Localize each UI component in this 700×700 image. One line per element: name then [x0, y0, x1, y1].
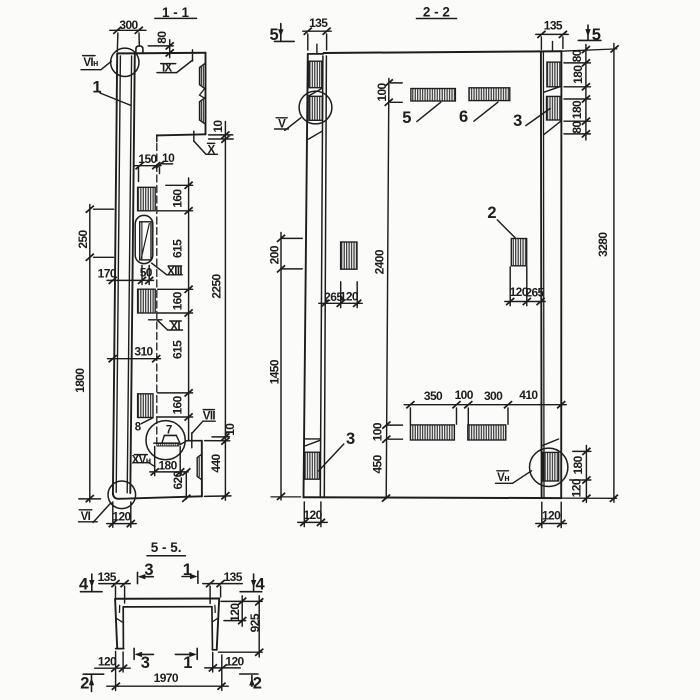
svg-text:120: 120 — [303, 508, 322, 522]
svg-text:6: 6 — [459, 108, 468, 126]
svg-text:Vн: Vн — [497, 472, 509, 484]
svg-text:5: 5 — [270, 26, 279, 44]
svg-text:1: 1 — [183, 654, 192, 672]
svg-text:1970: 1970 — [154, 671, 179, 685]
svg-text:350: 350 — [424, 389, 443, 403]
svg-text:925: 925 — [248, 613, 262, 632]
svg-text:V: V — [278, 119, 286, 131]
svg-text:10: 10 — [223, 423, 237, 436]
svg-text:410: 410 — [519, 388, 538, 402]
svg-text:160: 160 — [171, 395, 185, 414]
svg-text:7: 7 — [166, 424, 172, 436]
svg-text:XI: XI — [170, 321, 180, 333]
svg-text:160: 160 — [171, 189, 185, 208]
svg-text:5: 5 — [592, 26, 601, 44]
svg-text:VI: VI — [81, 511, 91, 523]
svg-text:3: 3 — [513, 112, 522, 130]
svg-text:135: 135 — [98, 570, 117, 584]
svg-text:1: 1 — [183, 561, 192, 579]
svg-text:5: 5 — [402, 109, 411, 127]
svg-text:2: 2 — [487, 204, 496, 222]
svg-text:1: 1 — [92, 79, 101, 97]
svg-text:615: 615 — [171, 239, 185, 258]
svg-text:300: 300 — [484, 389, 503, 403]
svg-text:265: 265 — [525, 286, 544, 300]
svg-text:440: 440 — [209, 453, 223, 472]
svg-text:2400: 2400 — [372, 249, 386, 274]
svg-text:120: 120 — [112, 510, 131, 524]
svg-text:200: 200 — [268, 245, 282, 264]
svg-text:120: 120 — [569, 478, 583, 497]
svg-text:3: 3 — [141, 654, 150, 672]
svg-text:3: 3 — [144, 561, 153, 579]
svg-text:VII: VII — [203, 410, 216, 422]
svg-text:300: 300 — [119, 18, 138, 32]
svg-text:3: 3 — [346, 430, 355, 448]
svg-text:10: 10 — [211, 120, 225, 133]
svg-text:120: 120 — [340, 289, 359, 303]
svg-text:X: X — [208, 145, 216, 157]
svg-text:80: 80 — [570, 121, 584, 134]
svg-text:10: 10 — [162, 151, 175, 165]
svg-text:120: 120 — [228, 603, 242, 622]
svg-text:450: 450 — [371, 454, 385, 473]
svg-text:100: 100 — [455, 388, 474, 402]
svg-text:170: 170 — [98, 267, 117, 281]
svg-text:2250: 2250 — [209, 273, 223, 298]
svg-text:2 - 2: 2 - 2 — [423, 5, 450, 20]
svg-text:100: 100 — [375, 82, 389, 101]
svg-text:100: 100 — [371, 422, 385, 441]
svg-text:250: 250 — [76, 229, 90, 248]
svg-text:IX: IX — [162, 63, 173, 75]
svg-text:180: 180 — [570, 100, 584, 119]
svg-text:2: 2 — [253, 675, 262, 693]
svg-text:1450: 1450 — [268, 359, 282, 384]
svg-text:135: 135 — [309, 16, 328, 30]
svg-text:150: 150 — [138, 152, 157, 166]
svg-text:80: 80 — [570, 49, 584, 62]
svg-text:180: 180 — [571, 455, 585, 474]
svg-text:180: 180 — [158, 458, 177, 472]
svg-text:XIII: XIII — [167, 266, 182, 278]
svg-text:160: 160 — [171, 291, 185, 310]
svg-text:5 - 5.: 5 - 5. — [151, 540, 182, 555]
svg-text:2: 2 — [80, 675, 89, 693]
svg-text:50: 50 — [140, 266, 153, 280]
svg-text:1800: 1800 — [73, 368, 87, 393]
svg-text:120: 120 — [225, 654, 244, 668]
svg-text:310: 310 — [134, 345, 153, 359]
svg-text:180: 180 — [571, 65, 585, 84]
svg-text:135: 135 — [544, 18, 563, 32]
svg-text:XVн: XVн — [132, 454, 151, 466]
svg-text:80: 80 — [155, 31, 169, 44]
svg-text:615: 615 — [171, 340, 185, 359]
svg-text:620: 620 — [171, 470, 185, 489]
svg-text:135: 135 — [224, 570, 243, 584]
svg-text:VIн: VIн — [83, 57, 98, 69]
svg-text:3280: 3280 — [596, 232, 610, 257]
svg-text:120: 120 — [98, 655, 117, 669]
svg-text:120: 120 — [542, 509, 561, 523]
